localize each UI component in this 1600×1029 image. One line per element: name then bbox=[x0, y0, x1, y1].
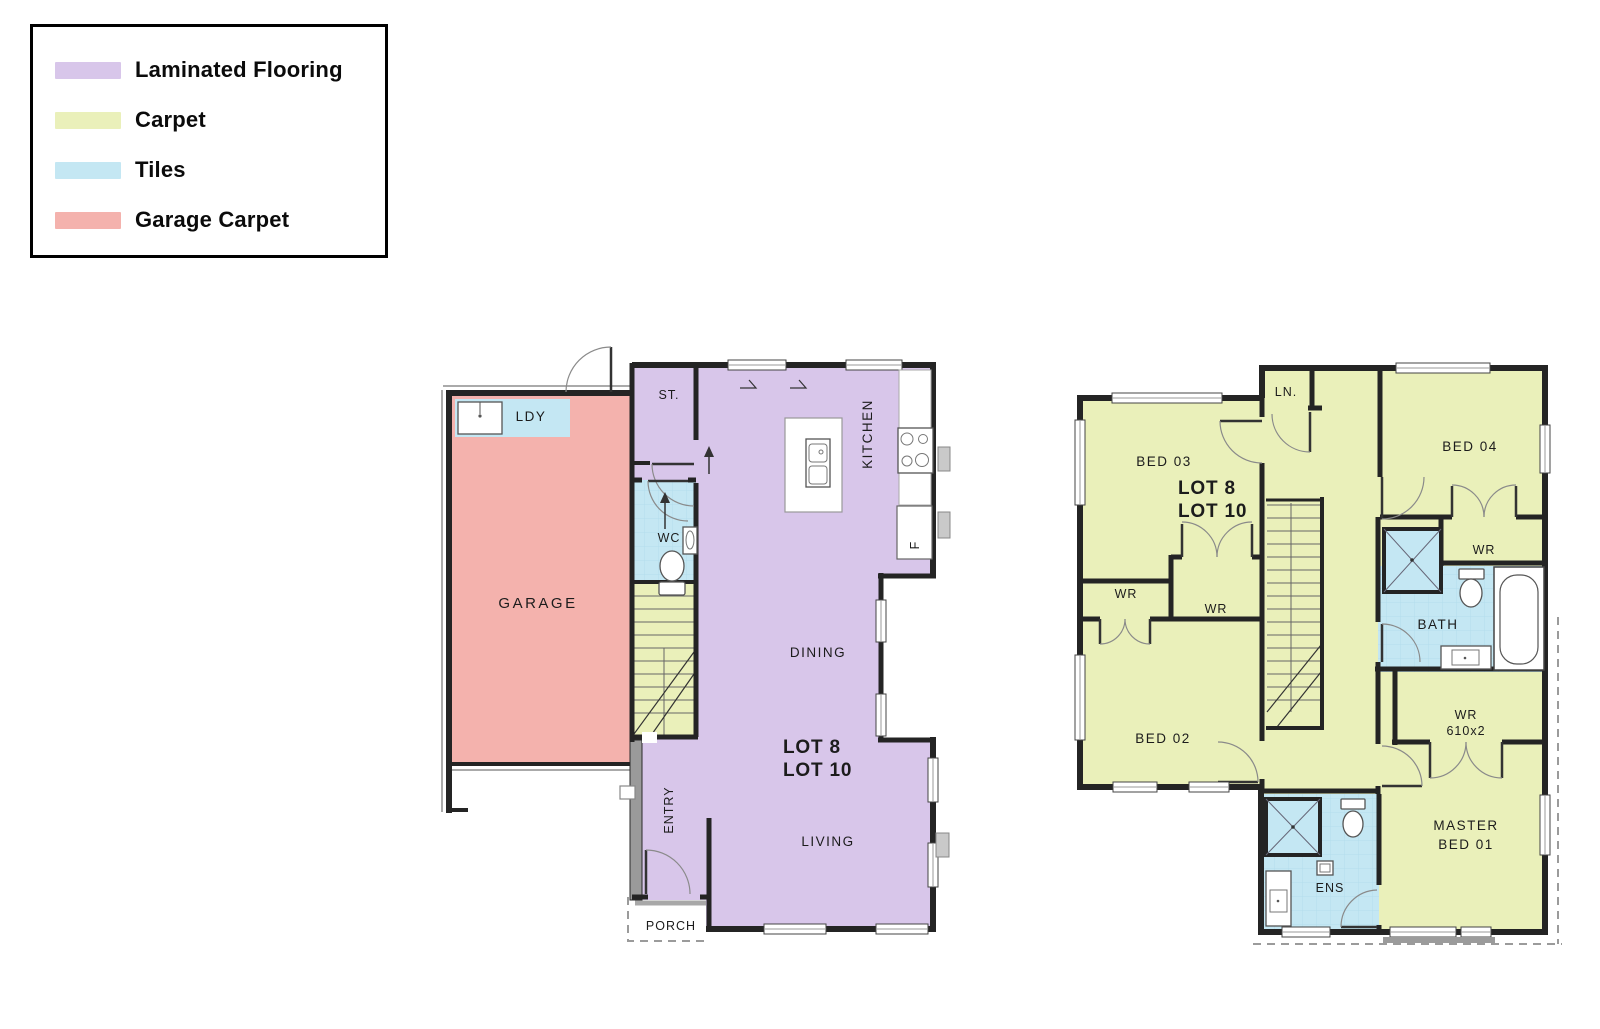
garage-label: GARAGE bbox=[498, 595, 577, 612]
wr-bed02-label: WR bbox=[1115, 587, 1138, 601]
ensuite-vanity bbox=[1266, 871, 1291, 926]
garage-room bbox=[450, 393, 632, 763]
wc-label: WC bbox=[658, 531, 681, 545]
stair-wall-notch bbox=[642, 732, 657, 743]
fridge-label: F bbox=[908, 541, 922, 550]
wall-pier bbox=[936, 833, 949, 857]
master-bed-label-line1: MASTER bbox=[1433, 818, 1498, 833]
wall-pier bbox=[938, 447, 950, 471]
bathtub bbox=[1494, 567, 1544, 670]
porch-label: PORCH bbox=[646, 919, 696, 933]
laundry-label: LDY bbox=[516, 409, 547, 424]
fridge-space bbox=[897, 506, 932, 559]
lot-label-line1: LOT 8 bbox=[1178, 478, 1236, 499]
ensuite-label: ENS bbox=[1316, 881, 1345, 895]
wall-pier bbox=[938, 512, 950, 538]
linen-label: LN. bbox=[1275, 385, 1297, 399]
bath-vanity bbox=[1441, 646, 1491, 669]
kitchen-island bbox=[785, 418, 842, 512]
wr-master-size-label: 610x2 bbox=[1446, 724, 1485, 738]
living-label: LIVING bbox=[801, 834, 854, 849]
storage-label: ST. bbox=[658, 388, 679, 402]
wc-basin bbox=[683, 527, 697, 554]
deck-strip bbox=[1383, 937, 1495, 943]
bed04-label: BED 04 bbox=[1442, 439, 1498, 454]
entry-label: ENTRY bbox=[662, 786, 676, 833]
ensuite-toilet bbox=[1341, 799, 1365, 837]
kitchen-label: KITCHEN bbox=[860, 399, 875, 469]
ensuite-cabinet bbox=[1317, 861, 1333, 875]
lot-label-line2: LOT 10 bbox=[1178, 501, 1247, 522]
bath-shower bbox=[1384, 529, 1441, 592]
bath-toilet bbox=[1459, 569, 1484, 607]
master-bed-label-line2: BED 01 bbox=[1438, 837, 1494, 852]
lot-label-line2: LOT 10 bbox=[783, 760, 852, 781]
wr-master-label: WR bbox=[1455, 708, 1478, 722]
upper-floor-plan: LN. BED 03 LOT 8 LOT 10 BED 04 WR WR WR … bbox=[1075, 363, 1562, 944]
wr-bed04-label: WR bbox=[1473, 543, 1496, 557]
cooktop bbox=[898, 428, 933, 473]
floor-plan-canvas: GARAGE LDY ST. WC KITCHEN F DINING LOT 8… bbox=[0, 0, 1600, 1029]
dining-label: DINING bbox=[790, 645, 846, 660]
bed03-label: BED 03 bbox=[1136, 454, 1192, 469]
lot-label-line1: LOT 8 bbox=[783, 737, 841, 758]
laundry-tub bbox=[458, 402, 502, 434]
bed02-label: BED 02 bbox=[1135, 731, 1191, 746]
entry-court-wall bbox=[630, 740, 642, 900]
ground-floor-plan: GARAGE LDY ST. WC KITCHEN F DINING LOT 8… bbox=[442, 347, 950, 941]
bath-label: BATH bbox=[1417, 617, 1458, 632]
meter-box bbox=[620, 786, 635, 799]
wr-bed03-label: WR bbox=[1205, 602, 1228, 616]
floor-plan-page: Laminated Flooring Carpet Tiles Garage C… bbox=[0, 0, 1600, 1029]
wc-toilet bbox=[659, 551, 685, 595]
ensuite-shower bbox=[1266, 799, 1320, 855]
